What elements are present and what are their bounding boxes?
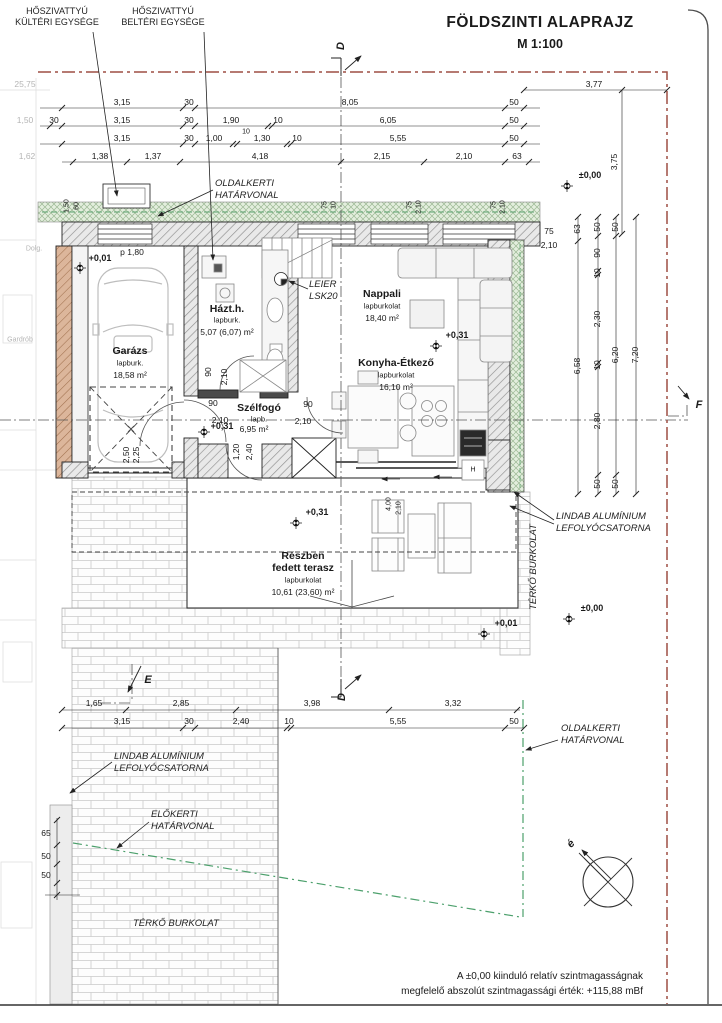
dim-label: 1,30 [254,133,271,143]
dim-label: 75 [491,201,498,209]
dim-label: 50 [509,133,518,143]
dim-label: 90 [592,248,602,257]
dim-label: 3,98 [304,698,321,708]
dim-label: 3,32 [445,698,462,708]
callout-side-boundary-right: OLDALKERTI HATÁRVONAL [561,723,625,747]
dim-label: 75 [544,226,553,236]
dim-label: 2,10 [541,240,558,250]
dim-label: 50 [610,479,620,488]
dim-label: 30 [49,115,58,125]
datum-note: A ±0,00 kiinduló relatív szintmagasságna… [400,969,643,999]
dim-label: 7,20 [630,347,640,364]
dim-label: 3,77 [586,79,603,89]
dim-label: 10 [592,360,602,369]
dim-label: 90 [203,367,213,376]
dim-label: 3,15 [114,97,131,107]
dim-label: 30 [184,97,193,107]
neighbour-room-label: Gardrób [7,337,33,344]
room-area-konyha: 16,10 m² [379,382,413,392]
dim-label: 75 [407,201,414,209]
room-name-terasz: Részben fedett terasz [272,550,334,574]
room-name-nappali: Nappali [363,288,401,300]
dim-label: 1,50 [64,199,71,213]
callout-paving-east: TÉRKŐ BURKOLAT [528,524,540,610]
dim-label: 50 [610,222,620,231]
dim-label: 90 [208,398,217,408]
callout-paving-bottom: TÉRKŐ BURKOLAT [133,918,219,930]
dim-label: 50 [592,222,602,231]
dim-label: 50 [41,870,50,880]
dim-label: 2,10 [295,416,312,426]
dim-label: 2,30 [592,311,602,328]
level-nappali: +0,31 [446,330,469,340]
dim-label: 25,75 [14,79,35,89]
room-name-garazs: Garázs [112,345,147,357]
room-finish-konyha: lapburkolat [378,371,415,380]
room-name-hazth: Házt.h. [210,303,244,315]
neighbour-room-label: Dolg. [26,246,42,253]
level-terrace-front: +0,01 [495,618,518,628]
dim-label: 10 [273,115,282,125]
room-area-nappali: 18,40 m² [365,313,399,323]
room-area-szelfogo: 6,95 m² [240,424,269,434]
heatpump-outdoor-unit [103,184,150,208]
room-finish-nappali: lapburkolat [364,302,401,311]
dim-label: 1,20 [231,444,241,461]
dim-label: 50 [41,851,50,861]
dim-label: 6,05 [380,115,397,125]
dim-label: 1,38 [92,151,109,161]
room-name-konyha: Konyha-Étkező [358,357,434,369]
callout-heatpump-indoor: HŐSZIVATTYÚ BELTÉRI EGYSÉGE [114,6,212,29]
dim-label: 3,15 [114,716,131,726]
dim-label: 10 [331,201,338,209]
appliance-h-label: H [470,467,475,474]
dim-label: 65 [41,828,50,838]
dim-label: 3,15 [114,115,131,125]
dim-label: 10 [292,133,301,143]
dim-label: 2,10 [456,151,473,161]
section-d-bottom: D [336,693,348,701]
room-finish-hazth: lapburk. [214,316,241,325]
dim-label: 10 [284,716,293,726]
callout-gutter-right: LINDAB ALUMÍNIUM LEFOLYÓCSATORNA [556,511,651,535]
dim-label: 2,25 [131,447,141,464]
dim-label: 30 [184,133,193,143]
room-area-hazth: 5,07 (6,07) m² [200,327,253,337]
dim-label: 2,85 [173,698,190,708]
level-garage-p: p 1,80 [120,247,144,257]
callout-side-boundary-top: OLDALKERTI HATÁRVONAL [215,178,279,202]
dim-label: 63 [512,151,521,161]
room-name-szelfogo: Szélfogó [237,402,281,414]
room-finish-szelfogo: lapb. [251,415,267,424]
dim-label: 50 [592,479,602,488]
dim-label: 30 [184,716,193,726]
dim-label: 50 [509,115,518,125]
page-title: FÖLDSZINTI ALAPRAJZ [446,14,633,32]
dim-label: 10 [242,129,250,136]
dim-label: 2,40 [244,444,254,461]
page-scale: M 1:100 [517,37,563,51]
dim-label: 50 [509,97,518,107]
callout-front-boundary: ELŐKERTI HATÁRVONAL [151,809,215,833]
room-area-terasz: 10,61 (23,60) m² [272,587,335,597]
dim-label: 10 [592,268,602,277]
section-d-top: D [335,42,347,50]
level-garage: +0,01 [89,253,112,263]
dim-label: 1,90 [223,115,240,125]
dim-label: 1,37 [145,151,162,161]
level-se-corner: ±0,00 [581,603,603,613]
section-f: F [696,399,703,411]
north-compass [579,850,633,907]
dim-label: 60 [74,202,81,210]
callout-gutter-left: LINDAB ALUMÍNIUM LEFOLYÓCSATORNA [114,751,209,775]
dim-label: 2,50 [121,447,131,464]
dim-label: 4,18 [252,151,269,161]
dim-label: 2,10 [416,200,423,214]
room-finish-garazs: lapburk. [117,359,144,368]
dim-label: 1,00 [206,133,223,143]
dim-label: 8,05 [342,97,359,107]
dim-label: 2,10 [219,369,229,386]
dim-label: 3,15 [114,133,131,143]
dim-label: 1,50 [17,115,34,125]
dim-label: 4,00 [386,497,393,511]
dim-label: 6,58 [572,358,582,375]
dim-label: 75 [322,201,329,209]
dim-label: 5,55 [390,716,407,726]
dim-label: 63 [572,224,582,233]
section-e: E [144,674,151,686]
dim-label: 2,80 [592,413,602,430]
dim-label: 1,65 [86,698,103,708]
room-area-garazs: 18,58 m² [113,370,147,380]
callout-heatpump-outdoor: HŐSZIVATTYÚ KÜLTÉRI EGYSÉGE [8,6,106,29]
dim-label: 2,40 [233,716,250,726]
dim-label: 2,10 [212,415,229,425]
dim-label: 6,20 [610,347,620,364]
floorplan-sheet: FÖLDSZINTI ALAPRAJZ M 1:100 HŐSZIVATTYÚ … [0,0,722,1023]
dim-label: 30 [184,115,193,125]
dim-label: 2,15 [374,151,391,161]
level-ne-corner: ±0,00 [579,170,601,180]
level-terasz: +0,31 [306,507,329,517]
dim-label: 90 [303,399,312,409]
room-finish-terasz: lapburkolat [285,576,322,585]
dim-label: 50 [509,716,518,726]
dim-label: 3,75 [609,154,619,171]
dim-label: 1,62 [19,151,36,161]
callout-leier-lsk20: LEIER LSK20 [309,279,338,303]
dim-label: 2,10 [500,200,507,214]
dim-label: 5,55 [390,133,407,143]
dim-label: 2,10 [396,501,403,515]
